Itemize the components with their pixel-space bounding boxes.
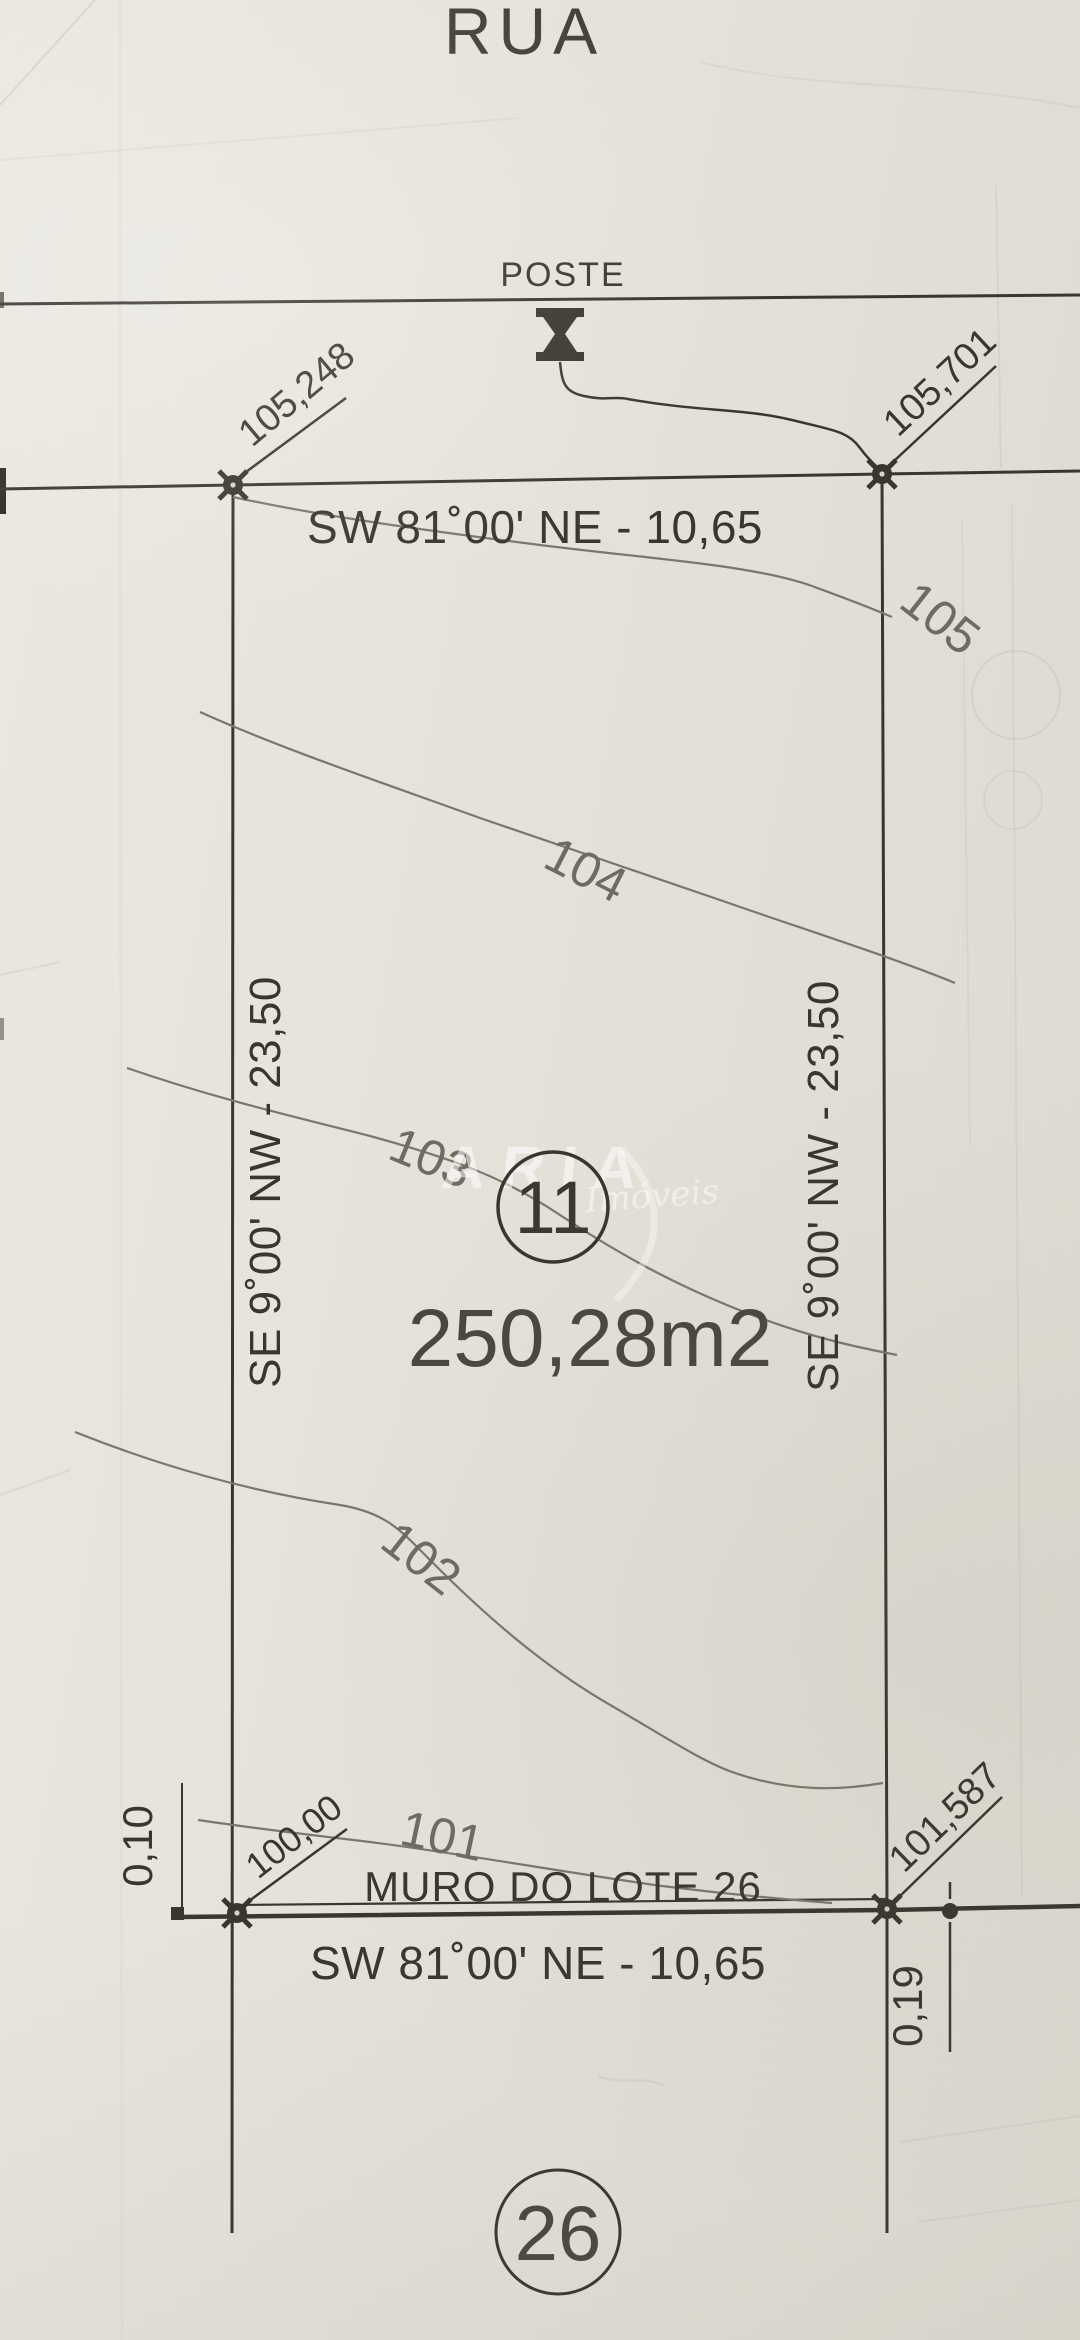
pole-label: POSTE — [500, 256, 625, 294]
front-boundary-line — [0, 471, 1080, 489]
corner-elevation-top-right: 105,701 — [875, 320, 1004, 444]
contour-line-102 — [75, 1432, 883, 1788]
dimension-left: SE 9˚00' NW - 23,50 — [241, 976, 290, 1388]
offset-right-point — [942, 1903, 958, 1919]
contour-label-104: 104 — [536, 826, 636, 914]
offset-left-value: 0,10 — [114, 1805, 161, 1887]
scan-edge-mark — [0, 468, 6, 514]
contour-label-102: 102 — [371, 1511, 471, 1606]
corner-elevation-top-left: 105,248 — [231, 334, 363, 454]
pole-leader-line — [560, 362, 881, 471]
dimension-back: SW 81˚00' NE - 10,65 — [310, 1937, 766, 1989]
corner-elevation-bottom-right: 101,587 — [881, 1755, 1009, 1881]
corner-marker-top-left — [219, 471, 247, 499]
offset-right-value: 0,19 — [884, 1965, 931, 2047]
pole-icon — [536, 308, 584, 361]
dimension-right: SE 9˚00' NW - 23,50 — [799, 980, 848, 1392]
lot-area: 250,28m2 — [408, 1293, 773, 1384]
street-name: RUA — [444, 0, 604, 68]
contour-label-105: 105 — [890, 571, 990, 666]
survey-plan-scan: RUA POSTE 105 104 103 102 101 ARIA Imóve… — [0, 0, 1080, 2340]
lot-number: 11 — [515, 1166, 592, 1249]
corner-elevation-bottom-left: 100,00 — [238, 1786, 350, 1886]
corner-marker-top-right — [868, 460, 896, 488]
adjacent-lot-number: 26 — [515, 2189, 602, 2277]
lot-left-boundary — [232, 485, 233, 2233]
corner-marker-bottom-right — [873, 1895, 901, 1923]
corner-marker-bottom-left — [223, 1899, 251, 1927]
watermark-sub: Imóveis — [583, 1172, 720, 1221]
dimension-front: SW 81˚00' NE - 10,65 — [307, 501, 763, 553]
wall-label: MURO DO LOTE 26 — [364, 1863, 762, 1910]
street-line — [0, 295, 1080, 304]
contour-label-101: 101 — [396, 1800, 489, 1872]
